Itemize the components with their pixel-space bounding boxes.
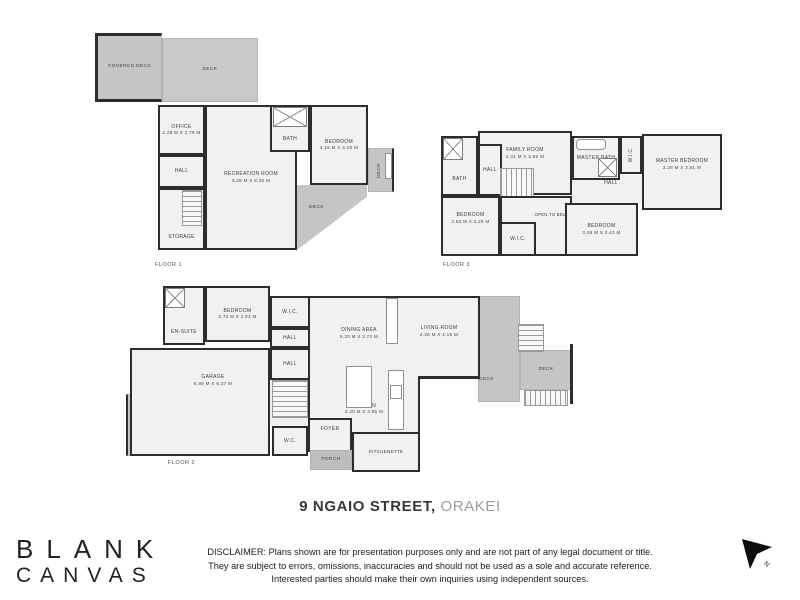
- floor2-room-hall-upper: HALL: [270, 328, 310, 348]
- floor2-room-wic: W.I.C.: [270, 296, 310, 328]
- room-dims: 4.31 M X 3.59 M: [506, 154, 544, 161]
- floor1-label: FLOOR 1: [155, 262, 182, 268]
- floor1-deck-rear: DECK: [297, 185, 367, 250]
- shower-icon: [165, 288, 185, 308]
- room-name: FOYER: [321, 426, 340, 433]
- room-name: BATH: [452, 176, 466, 183]
- stairs: [524, 390, 568, 406]
- deck-boundary-wall: [570, 344, 573, 404]
- room-label: LIVING ROOM 4.26 M X 4.19 M: [406, 325, 472, 338]
- floorplan-page: COVERED DECK DECK OFFICE 2.28 M X 2.78 M…: [0, 0, 800, 600]
- room-name: HALL: [283, 361, 297, 368]
- floor2-room-wc: W.C.: [272, 426, 308, 456]
- shower-icon: [598, 158, 617, 177]
- room-dims: 2.28 M X 2.78 M: [162, 130, 200, 137]
- room-name: FAMILY ROOM: [506, 147, 544, 154]
- room-dims: 5.99 M X 6.37 M: [178, 381, 248, 388]
- room-dims: 3.73 M X 2.93 M: [218, 314, 256, 321]
- room-dims: 3.08 M X 3.42 M: [582, 230, 620, 237]
- room-dims: 4.16 M X 4.19 M: [320, 145, 358, 152]
- stairs: [518, 324, 544, 352]
- room-label: FAMILY ROOM 4.31 M X 3.59 M: [506, 147, 544, 160]
- room-name: RECREATION ROOM: [224, 171, 278, 178]
- room-label: OFFICE 2.28 M X 2.78 M: [162, 124, 200, 137]
- floor2-porch: PORCH: [310, 450, 352, 470]
- floor2-label: FLOOR 2: [168, 460, 195, 466]
- floor1-room-hall: HALL: [158, 155, 205, 188]
- stairs: [182, 190, 202, 226]
- room-name: W.C.: [284, 438, 296, 445]
- room-dims: 3.20 M X 3.85 M: [345, 409, 383, 416]
- deck-step-icon: [385, 153, 392, 179]
- room-name: BATH: [283, 136, 297, 143]
- kitchen-island: [346, 366, 372, 408]
- floor2-room-bedroom: BEDROOM 3.73 M X 2.93 M: [205, 286, 270, 342]
- floor3-room-wic2: W.I.C.: [500, 222, 536, 256]
- room-label: BEDROOM 3.08 M X 3.42 M: [582, 223, 620, 236]
- floor2-room-foyer: FOYER: [308, 418, 352, 452]
- shower-icon: [443, 138, 463, 160]
- room-label: RECREATION ROOM 3.28 M X 8.35 M: [224, 171, 278, 184]
- north-arrow-svg: [737, 534, 781, 580]
- room-name: KITCHENETTE: [369, 449, 404, 456]
- floor3-room-wic: W.I.C.: [620, 136, 642, 174]
- room-dims: 4.26 M X 4.19 M: [406, 332, 472, 339]
- logo-line2: CANVAS: [16, 565, 166, 587]
- room-label: BEDROOM 3.73 M X 2.93 M: [218, 308, 256, 321]
- room-name: BEDROOM: [582, 223, 620, 230]
- logo-line1: BLANK: [16, 536, 166, 563]
- floor3-label: FLOOR 3: [443, 262, 470, 268]
- room-name: W.I.C.: [628, 147, 635, 162]
- blank-canvas-logo: BLANK CANVAS: [16, 536, 166, 587]
- floor3-room-master-bedroom: MASTER BEDROOM 3.38 M X 3.61 M: [642, 134, 722, 210]
- page-title: 9 NGAIO STREET, ORAKEI: [0, 498, 800, 515]
- floor1-room-office: OFFICE 2.28 M X 2.78 M: [158, 105, 205, 155]
- room-name: STORAGE: [168, 234, 194, 241]
- floor2-room-kitchenette: KITCHENETTE: [352, 432, 420, 472]
- room-name: EN-SUITE: [171, 329, 197, 336]
- room-dims: 3.28 M X 8.35 M: [224, 178, 278, 185]
- room-name: HALL: [175, 168, 189, 175]
- room-label: BEDROOM 2.63 M X 3.26 M: [451, 212, 489, 225]
- kitchen-counter: [388, 370, 404, 430]
- room-label: BEDROOM 4.16 M X 4.19 M: [320, 139, 358, 152]
- floor1-room-bedroom: BEDROOM 4.16 M X 4.19 M: [310, 105, 368, 185]
- floor3-room-bedroom-left: BEDROOM 2.63 M X 3.26 M: [441, 196, 500, 256]
- room-name: DECK: [309, 205, 324, 212]
- floor2-deck-right-small: DECK: [520, 350, 572, 390]
- floor3-room-bedroom-right: BEDROOM 3.08 M X 3.42 M: [565, 203, 638, 256]
- room-name: HALL: [283, 335, 297, 342]
- room-name: DECK: [479, 377, 494, 384]
- room-name: MASTER BEDROOM: [656, 158, 708, 165]
- floor2-deck-right-big: DECK: [478, 296, 520, 402]
- disclaimer-line3: Interested parties should make their own…: [150, 573, 710, 587]
- disclaimer-text: DISCLAIMER: Plans shown are for presenta…: [150, 546, 710, 587]
- room-name: COVERED DECK: [108, 64, 151, 71]
- floor1-deck-top: DECK: [162, 38, 258, 102]
- room-dims: 2.63 M X 3.26 M: [451, 219, 489, 226]
- room-label: GARAGE 5.99 M X 6.37 M: [178, 374, 248, 387]
- room-name: W.I.C.: [282, 309, 297, 316]
- floor2-room-garage: [130, 348, 270, 456]
- room-name: DECK: [377, 163, 384, 178]
- room-name: PORCH: [321, 457, 340, 464]
- bathtub-icon: [576, 139, 606, 150]
- room-name: W.I.C.: [510, 236, 525, 243]
- room-name: DECK: [539, 367, 554, 374]
- floor1-covered-deck: COVERED DECK: [95, 33, 162, 102]
- stairs: [272, 380, 308, 418]
- living-deck-wall: [418, 376, 480, 379]
- room-name: BEDROOM: [451, 212, 489, 219]
- shower-icon: [273, 107, 307, 127]
- room-name: HALL: [483, 167, 497, 174]
- disclaimer-line1: DISCLAIMER: Plans shown are for presenta…: [150, 546, 710, 560]
- stove-icon: [390, 385, 402, 399]
- title-suburb: ORAKEI: [441, 498, 501, 515]
- floor2-room-hall-mid: HALL: [270, 348, 310, 380]
- floor3-room-hall-small: HALL: [478, 144, 502, 196]
- room-label: MASTER BEDROOM 3.38 M X 3.61 M: [656, 158, 708, 171]
- north-arrow-icon: N: [737, 534, 781, 580]
- title-address: 9 NGAIO STREET,: [299, 498, 436, 515]
- room-label: DINING AREA 5.30 M X 3.72 M: [327, 327, 391, 340]
- room-name: DECK: [203, 67, 218, 74]
- floor3-hall-label: HALL: [596, 180, 626, 186]
- room-dims: 5.30 M X 3.72 M: [327, 334, 391, 341]
- room-dims: 3.38 M X 3.61 M: [656, 165, 708, 172]
- disclaimer-line2: They are subject to errors, omissions, i…: [150, 560, 710, 574]
